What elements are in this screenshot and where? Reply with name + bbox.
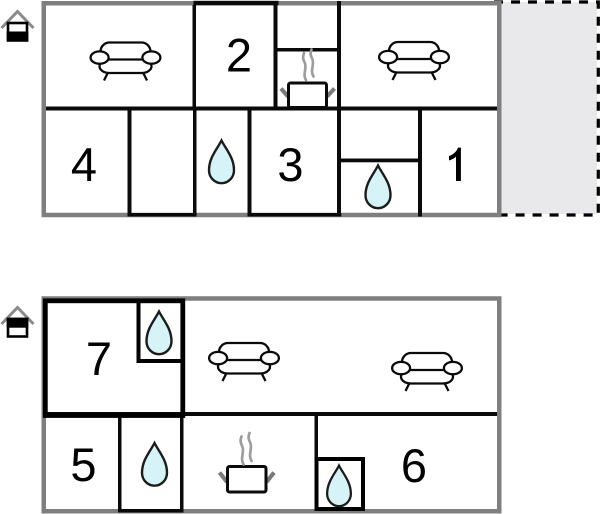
svg-text:7: 7: [86, 332, 112, 385]
svg-text:3: 3: [277, 138, 303, 191]
svg-text:5: 5: [70, 438, 96, 491]
svg-text:4: 4: [71, 138, 97, 191]
svg-text:6: 6: [401, 439, 427, 492]
svg-text:2: 2: [226, 29, 252, 82]
